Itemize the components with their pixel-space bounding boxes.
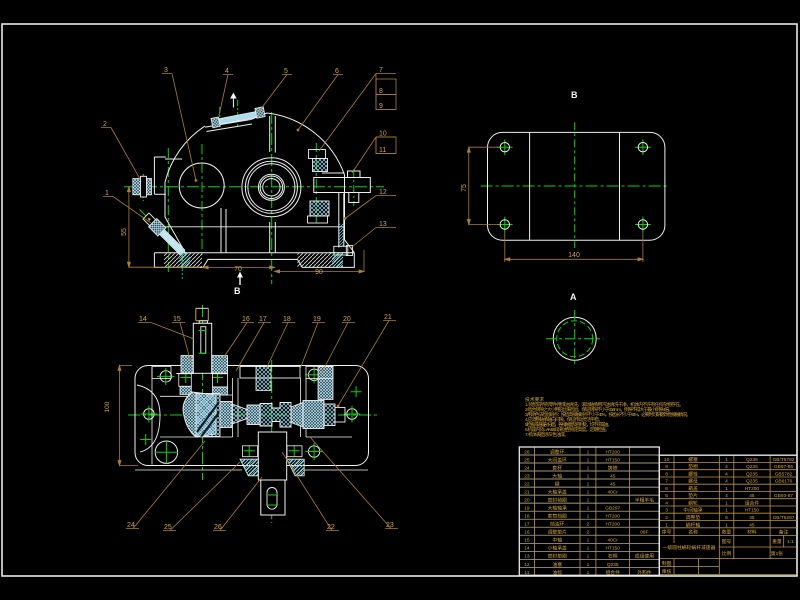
svg-text:22: 22	[327, 524, 335, 531]
svg-text:GB6170: GB6170	[775, 479, 793, 485]
svg-text:组合件: 组合件	[745, 500, 760, 507]
svg-text:螺塞: 螺塞	[688, 456, 698, 463]
svg-text:6: 6	[665, 486, 668, 492]
svg-text:4: 4	[725, 472, 728, 478]
svg-text:GB/T5287: GB/T5287	[773, 515, 795, 521]
svg-text:外购件: 外购件	[637, 569, 652, 576]
svg-text:45: 45	[749, 515, 755, 521]
svg-text:螺栓: 螺栓	[688, 471, 698, 478]
svg-text:4: 4	[725, 493, 728, 499]
svg-text:备注: 备注	[779, 529, 789, 536]
svg-text:小轴承盖: 小轴承盖	[548, 545, 567, 552]
svg-text:套筒挡圈: 套筒挡圈	[548, 513, 567, 520]
svg-text:6: 6	[335, 68, 339, 75]
svg-text:GB/T5782: GB/T5782	[773, 457, 795, 463]
svg-text:油塞: 油塞	[552, 561, 562, 568]
svg-text:HT150: HT150	[745, 508, 760, 514]
svg-text:B: B	[234, 286, 241, 296]
svg-text:17: 17	[259, 316, 267, 323]
svg-text:7: 7	[379, 67, 383, 74]
svg-text:8: 8	[379, 88, 383, 95]
svg-text:HT200: HT200	[745, 486, 760, 492]
svg-text:15: 15	[524, 538, 530, 544]
svg-text:24: 24	[127, 522, 135, 529]
svg-text:大轴: 大轴	[552, 472, 562, 479]
svg-text:2: 2	[587, 522, 590, 528]
svg-text:20: 20	[524, 498, 530, 504]
svg-text:油标: 油标	[552, 569, 562, 576]
svg-text:1: 1	[587, 498, 590, 504]
svg-text:中轴: 中轴	[552, 537, 562, 544]
svg-text:1: 1	[725, 501, 728, 507]
svg-text:25: 25	[164, 524, 172, 531]
svg-text:垫片: 垫片	[688, 492, 698, 499]
svg-text:45: 45	[610, 482, 616, 488]
svg-text:6. 机座内装L-AN68润滑油至规定高度，定期检查。: 6. 机座内装L-AN68润滑油至规定高度，定期检查。	[525, 426, 610, 433]
svg-text:90: 90	[315, 269, 323, 276]
svg-text:9: 9	[379, 103, 383, 110]
svg-text:石棉: 石棉	[608, 553, 618, 560]
svg-text:1: 1	[587, 546, 590, 552]
svg-text:Q235: Q235	[607, 562, 619, 568]
svg-text:1: 1	[587, 570, 590, 576]
svg-text:45: 45	[610, 473, 616, 479]
svg-text:1: 1	[587, 473, 590, 479]
svg-text:4: 4	[665, 501, 668, 507]
svg-text:1: 1	[587, 562, 590, 568]
svg-text:45: 45	[749, 493, 755, 499]
svg-text:55: 55	[121, 228, 128, 236]
svg-text:14: 14	[524, 546, 530, 552]
svg-text:1:1: 1:1	[787, 539, 794, 545]
svg-text:成组使用: 成组使用	[635, 553, 654, 560]
svg-text:一级圆柱蜗轮蜗杆减速器: 一级圆柱蜗轮蜗杆减速器	[663, 544, 716, 551]
svg-text:3: 3	[164, 67, 168, 74]
svg-text:数量: 数量	[722, 529, 732, 536]
svg-text:4. 应调整轴承轴向间隙，保证传动灵活平稳。: 4. 应调整轴承轴向间隙，保证传动灵活平稳。	[525, 416, 603, 423]
svg-text:GB5782: GB5782	[775, 472, 793, 478]
svg-text:Q235: Q235	[746, 479, 758, 485]
svg-text:材料: 材料	[747, 529, 757, 536]
svg-text:GB97-86: GB97-86	[774, 464, 794, 470]
svg-text:26: 26	[214, 524, 222, 531]
svg-text:45: 45	[749, 522, 755, 528]
svg-text:2: 2	[587, 530, 590, 536]
svg-text:Q235: Q235	[746, 472, 758, 478]
svg-text:13: 13	[379, 221, 387, 228]
svg-text:垫圈: 垫圈	[688, 463, 698, 470]
svg-text:11: 11	[524, 570, 529, 576]
svg-text:12: 12	[379, 189, 387, 196]
svg-text:23: 23	[524, 473, 530, 479]
svg-text:75: 75	[461, 184, 468, 192]
svg-text:箱盖: 箱盖	[688, 485, 698, 492]
svg-text:19: 19	[524, 506, 530, 512]
svg-text:密封垫圈: 密封垫圈	[548, 553, 567, 560]
svg-text:A: A	[570, 292, 577, 302]
svg-text:B: B	[571, 90, 578, 100]
svg-text:4: 4	[725, 464, 728, 470]
svg-text:7: 7	[665, 479, 668, 485]
svg-text:6: 6	[725, 515, 728, 521]
svg-text:4: 4	[225, 68, 229, 75]
svg-text:图号: 图号	[722, 539, 732, 545]
svg-text:1: 1	[587, 465, 590, 471]
svg-text:70: 70	[234, 266, 242, 273]
svg-text:挡油环: 挡油环	[550, 521, 565, 528]
svg-text:HT200: HT200	[605, 449, 620, 455]
svg-text:10: 10	[379, 131, 387, 138]
svg-text:22: 22	[524, 482, 530, 488]
svg-text:2. 啮合侧隙之大小用铅丝来检验，保证侧隙不小于0.16mm: 2. 啮合侧隙之大小用铅丝来检验，保证侧隙不小于0.16mm，侧隙不得大于最小侧…	[525, 406, 673, 413]
svg-text:1: 1	[587, 449, 590, 455]
svg-text:1: 1	[725, 457, 728, 463]
svg-text:11: 11	[379, 147, 386, 154]
svg-text:21: 21	[384, 314, 392, 321]
svg-text:1: 1	[587, 490, 590, 496]
svg-text:比例: 比例	[722, 550, 732, 557]
svg-text:14: 14	[139, 316, 147, 323]
svg-text:序号: 序号	[662, 529, 672, 536]
svg-text:调整环: 调整环	[550, 448, 565, 455]
svg-text:半粗羊毛: 半粗羊毛	[635, 497, 654, 504]
svg-text:3: 3	[665, 508, 668, 514]
svg-text:16: 16	[524, 530, 530, 536]
svg-text:组合件: 组合件	[605, 569, 620, 576]
svg-text:HT150: HT150	[605, 546, 620, 552]
svg-text:蜗杆轴: 蜗杆轴	[686, 521, 701, 528]
svg-text:套杯: 套杯	[552, 464, 562, 471]
svg-text:技术要求: 技术要求	[525, 396, 544, 403]
svg-text:15: 15	[173, 316, 181, 323]
svg-text:1: 1	[587, 506, 590, 512]
svg-text:1: 1	[587, 482, 590, 488]
svg-text:重量: 重量	[772, 538, 782, 545]
svg-text:审核: 审核	[662, 568, 672, 575]
svg-text:19: 19	[313, 316, 321, 323]
svg-text:名称: 名称	[688, 529, 698, 536]
svg-text:8: 8	[665, 472, 668, 478]
svg-text:21: 21	[524, 490, 530, 496]
svg-text:制图: 制图	[662, 560, 672, 567]
svg-text:键: 键	[555, 481, 560, 488]
svg-text:HT200: HT200	[605, 514, 620, 520]
svg-text:12: 12	[524, 562, 530, 568]
svg-text:24: 24	[524, 465, 530, 471]
svg-text:1: 1	[587, 514, 590, 520]
svg-text:大轴承盖: 大轴承盖	[548, 489, 567, 496]
svg-text:1: 1	[587, 554, 590, 560]
svg-text:中间轴承: 中间轴承	[683, 507, 702, 514]
svg-text:铸铁: 铸铁	[608, 464, 618, 471]
svg-text:1: 1	[587, 538, 590, 544]
svg-text:HT150: HT150	[605, 457, 620, 463]
svg-text:23: 23	[386, 522, 394, 529]
svg-text:3. 用涂色法检验斑点：按齿高接触斑点不少于40%，按齿长不: 3. 用涂色法检验斑点：按齿高接触斑点不少于40%，按齿长不少于50%，必要时可…	[525, 411, 691, 418]
svg-text:10: 10	[664, 457, 670, 463]
svg-text:蜗轮: 蜗轮	[688, 500, 698, 507]
svg-text:18: 18	[283, 316, 291, 323]
svg-text:1: 1	[587, 457, 590, 463]
svg-text:18: 18	[524, 514, 530, 520]
svg-text:GB297: GB297	[605, 506, 620, 512]
svg-text:5. 检查减速器剖分面、各接触面及密封处，均不许漏油。: 5. 检查减速器剖分面、各接触面及密封处，均不许漏油。	[525, 421, 612, 428]
svg-text:第1张: 第1张	[771, 550, 783, 557]
svg-text:大闷盖环: 大闷盖环	[548, 456, 567, 463]
svg-text:26: 26	[524, 449, 530, 455]
svg-text:大轴轴承: 大轴轴承	[548, 505, 567, 512]
svg-text:4: 4	[725, 479, 728, 485]
svg-text:140: 140	[568, 252, 580, 259]
svg-text:1: 1	[725, 508, 728, 514]
svg-text:1: 1	[105, 190, 109, 197]
svg-text:13: 13	[524, 554, 530, 560]
svg-text:1: 1	[725, 486, 728, 492]
svg-text:调整垫片: 调整垫片	[548, 529, 567, 536]
svg-text:Q235: Q235	[746, 457, 758, 463]
svg-text:密封毡圈: 密封毡圈	[548, 497, 567, 504]
svg-text:9: 9	[665, 464, 668, 470]
svg-text:Q235: Q235	[746, 464, 758, 470]
svg-text:17: 17	[524, 522, 530, 528]
svg-text:100: 100	[104, 401, 111, 412]
svg-text:1. 装配前所有零件用煤油清洗，滚动轴承用汽油清洗干净，机体: 1. 装配前所有零件用煤油清洗，滚动轴承用汽油清洗干净，机体内不许有任何杂物存在…	[525, 401, 684, 408]
svg-text:40Cr: 40Cr	[607, 490, 618, 496]
svg-text:调整垫: 调整垫	[686, 514, 701, 521]
svg-text:1: 1	[725, 522, 728, 528]
svg-text:5: 5	[665, 493, 668, 499]
svg-text:1: 1	[665, 522, 668, 528]
svg-text:25: 25	[524, 457, 530, 463]
svg-text:7. 机体表面涂灰色油漆。: 7. 机体表面涂灰色油漆。	[525, 431, 569, 438]
svg-text:5: 5	[284, 68, 288, 75]
svg-text:GB93-87: GB93-87	[774, 493, 794, 499]
svg-text:16: 16	[242, 316, 250, 323]
svg-text:08F: 08F	[640, 530, 648, 536]
svg-text:螺母: 螺母	[688, 478, 698, 485]
svg-text:HT200: HT200	[605, 522, 620, 528]
svg-text:40Cr: 40Cr	[607, 538, 618, 544]
svg-text:2: 2	[103, 121, 107, 128]
svg-text:20: 20	[343, 316, 351, 323]
svg-text:2: 2	[665, 515, 668, 521]
